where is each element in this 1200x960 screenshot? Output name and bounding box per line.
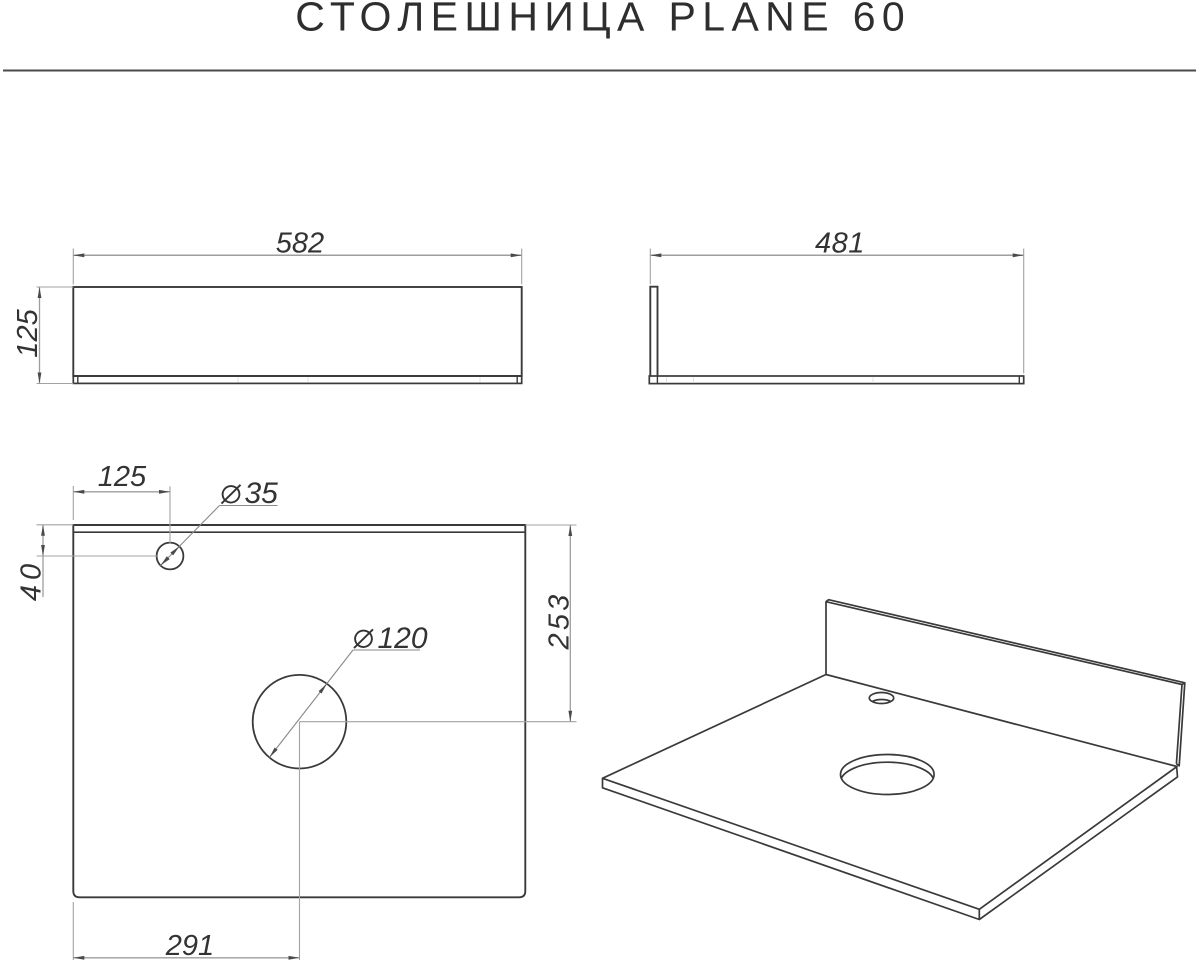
svg-text:582: 582	[276, 228, 324, 260]
svg-text:35: 35	[245, 477, 279, 510]
svg-text:40: 40	[16, 559, 48, 601]
svg-text:120: 120	[378, 622, 428, 655]
svg-text:253: 253	[544, 592, 576, 651]
svg-text:125: 125	[98, 461, 147, 493]
svg-text:СТОЛЕШНИЦА PLANE 60: СТОЛЕШНИЦА PLANE 60	[295, 0, 911, 39]
svg-text:291: 291	[165, 930, 214, 960]
svg-text:481: 481	[815, 228, 865, 260]
svg-text:125: 125	[12, 308, 44, 357]
